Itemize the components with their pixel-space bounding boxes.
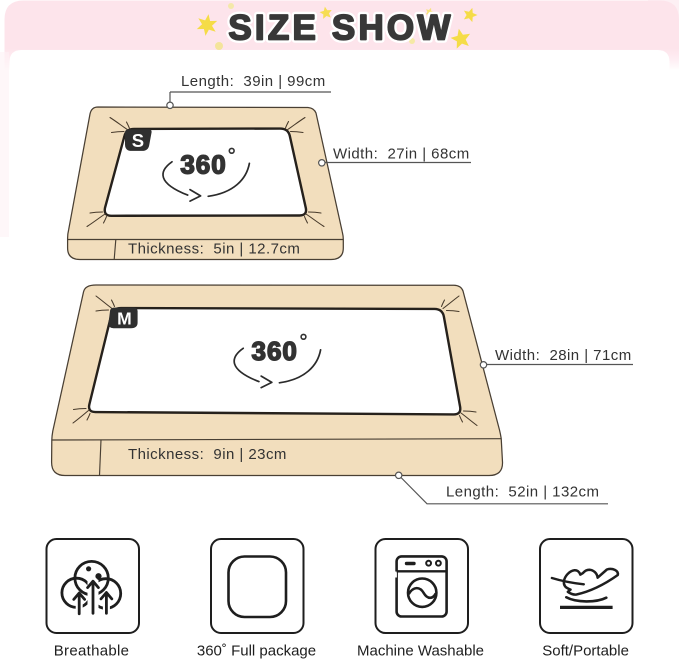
svg-text:Thickness: 5in | 12.7cm: Thickness: 5in | 12.7cm	[128, 241, 300, 258]
svg-text:S: S	[132, 130, 144, 151]
svg-text:360: 360	[180, 149, 226, 179]
svg-text:Width: 28in | 71cm: Width: 28in | 71cm	[495, 347, 632, 364]
svg-text:Breathable: Breathable	[54, 643, 130, 660]
svg-text:360: 360	[252, 336, 298, 366]
svg-text:Length: 39in | 99cm: Length: 39in | 99cm	[181, 73, 326, 90]
svg-text:360˚ Full package: 360˚ Full package	[197, 643, 316, 660]
svg-text:Width: 27in | 68cm: Width: 27in | 68cm	[333, 146, 470, 163]
svg-text:Soft/Portable: Soft/Portable	[542, 643, 629, 660]
svg-text:SIZE SHOW: SIZE SHOW	[228, 9, 453, 48]
svg-text:Machine Washable: Machine Washable	[357, 643, 484, 660]
svg-text:Length: 52in | 132cm: Length: 52in | 132cm	[446, 484, 599, 501]
svg-text:M: M	[117, 308, 132, 328]
svg-text:Thickness: 9in | 23cm: Thickness: 9in | 23cm	[128, 446, 287, 463]
